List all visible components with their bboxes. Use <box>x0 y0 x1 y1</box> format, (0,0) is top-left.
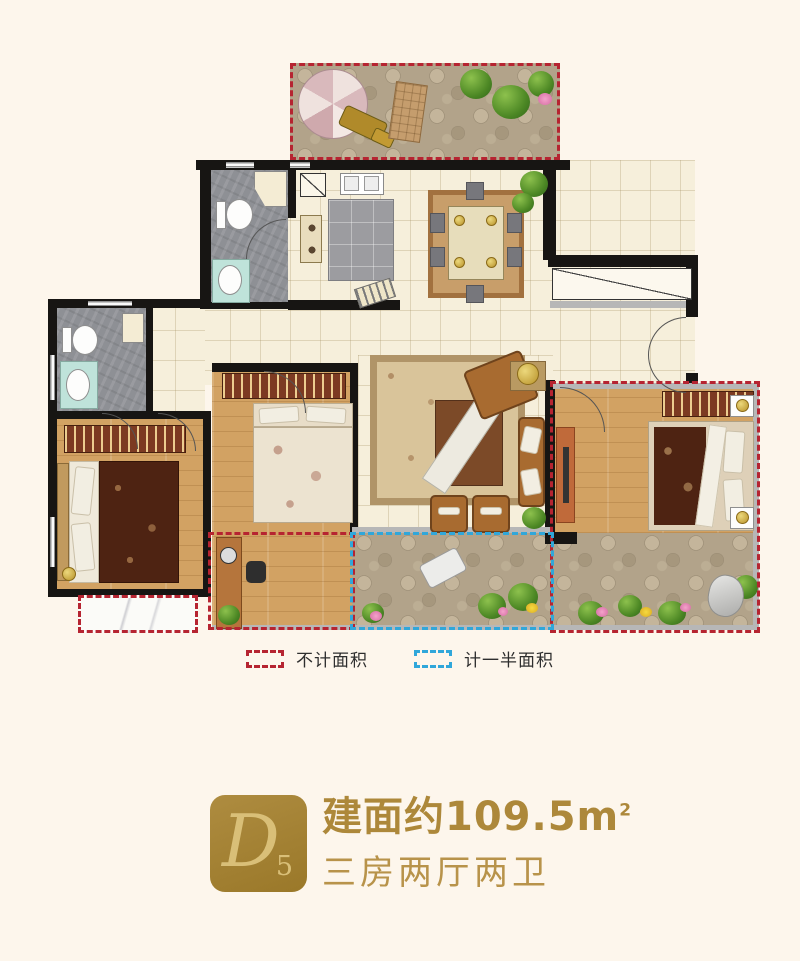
sink-basin <box>364 176 379 191</box>
kitchen-island <box>328 199 394 281</box>
wall <box>548 255 698 267</box>
plant <box>522 507 546 529</box>
toilet-tank <box>62 327 72 353</box>
dining-chair <box>466 285 484 303</box>
plate <box>486 257 497 268</box>
bed-blanket-floral <box>253 427 353 523</box>
shower <box>122 313 144 343</box>
unit-letter: D <box>222 795 280 890</box>
red-dash-swatch <box>246 650 284 668</box>
dining-chair <box>466 182 484 200</box>
legend-label: 计一半面积 <box>464 646 554 671</box>
plant <box>512 193 534 213</box>
plate <box>454 257 465 268</box>
wall <box>288 160 296 218</box>
dining-chair <box>507 213 522 233</box>
flowers <box>538 93 552 105</box>
entry-cabinet <box>552 268 692 300</box>
blue-dash-swatch <box>414 650 452 668</box>
low-wall <box>550 301 696 308</box>
plant <box>460 69 492 99</box>
window <box>50 355 55 400</box>
unit-number: 5 <box>276 851 293 882</box>
stove <box>300 215 322 263</box>
wall <box>200 302 295 309</box>
sink-basin <box>344 176 359 191</box>
floor-plan <box>40 55 770 640</box>
legend: 不计面积 计一半面积 <box>0 646 800 671</box>
plate <box>486 215 497 226</box>
bed-headboard <box>57 463 69 581</box>
floor-plan-page: 不计面积 计一半面积 D 5 建面约109.5m2 三房两厅两卫 <box>0 0 800 961</box>
pantry-cabinet <box>300 173 326 197</box>
tub-basin <box>218 265 242 295</box>
legend-item-half: 计一半面积 <box>414 646 554 671</box>
half-area-outline-garden <box>350 532 554 630</box>
bed-blanket <box>99 461 179 583</box>
dining-chair <box>507 247 522 267</box>
window <box>50 517 55 567</box>
excluded-area-outline-bedroom2 <box>208 532 355 630</box>
area-unit: m <box>577 794 620 840</box>
toilet <box>226 199 253 230</box>
legend-label: 不计面积 <box>296 646 368 671</box>
toilet-tank <box>216 201 226 229</box>
wall <box>288 300 400 310</box>
floor-lamp <box>62 567 76 581</box>
window <box>290 162 310 168</box>
armrest-cloth <box>438 507 460 515</box>
unit-badge: D 5 <box>210 795 307 892</box>
dining-chair <box>430 247 445 267</box>
toilet <box>72 325 98 355</box>
plate <box>454 215 465 226</box>
unit-info: 建面约109.5m2 三房两厅两卫 <box>322 793 632 894</box>
layout-subtitle: 三房两厅两卫 <box>322 845 632 894</box>
dining-chair <box>430 213 445 233</box>
area-unit-exponent: 2 <box>619 801 632 821</box>
wall <box>212 363 358 372</box>
wall <box>146 305 153 415</box>
bay-window <box>78 595 198 633</box>
tub-basin <box>66 369 90 401</box>
area-value: 建面约109.5 <box>322 794 577 840</box>
window <box>226 162 254 168</box>
table-lamp <box>517 363 539 385</box>
excluded-area-outline-master <box>550 381 760 633</box>
window <box>88 301 132 306</box>
area-title: 建面约109.5m2 <box>322 793 632 841</box>
legend-item-excluded: 不计面积 <box>246 646 368 671</box>
wall <box>48 411 208 419</box>
plant <box>492 85 530 119</box>
wall <box>200 160 211 308</box>
armrest-cloth <box>480 507 502 515</box>
pillow <box>305 406 346 425</box>
